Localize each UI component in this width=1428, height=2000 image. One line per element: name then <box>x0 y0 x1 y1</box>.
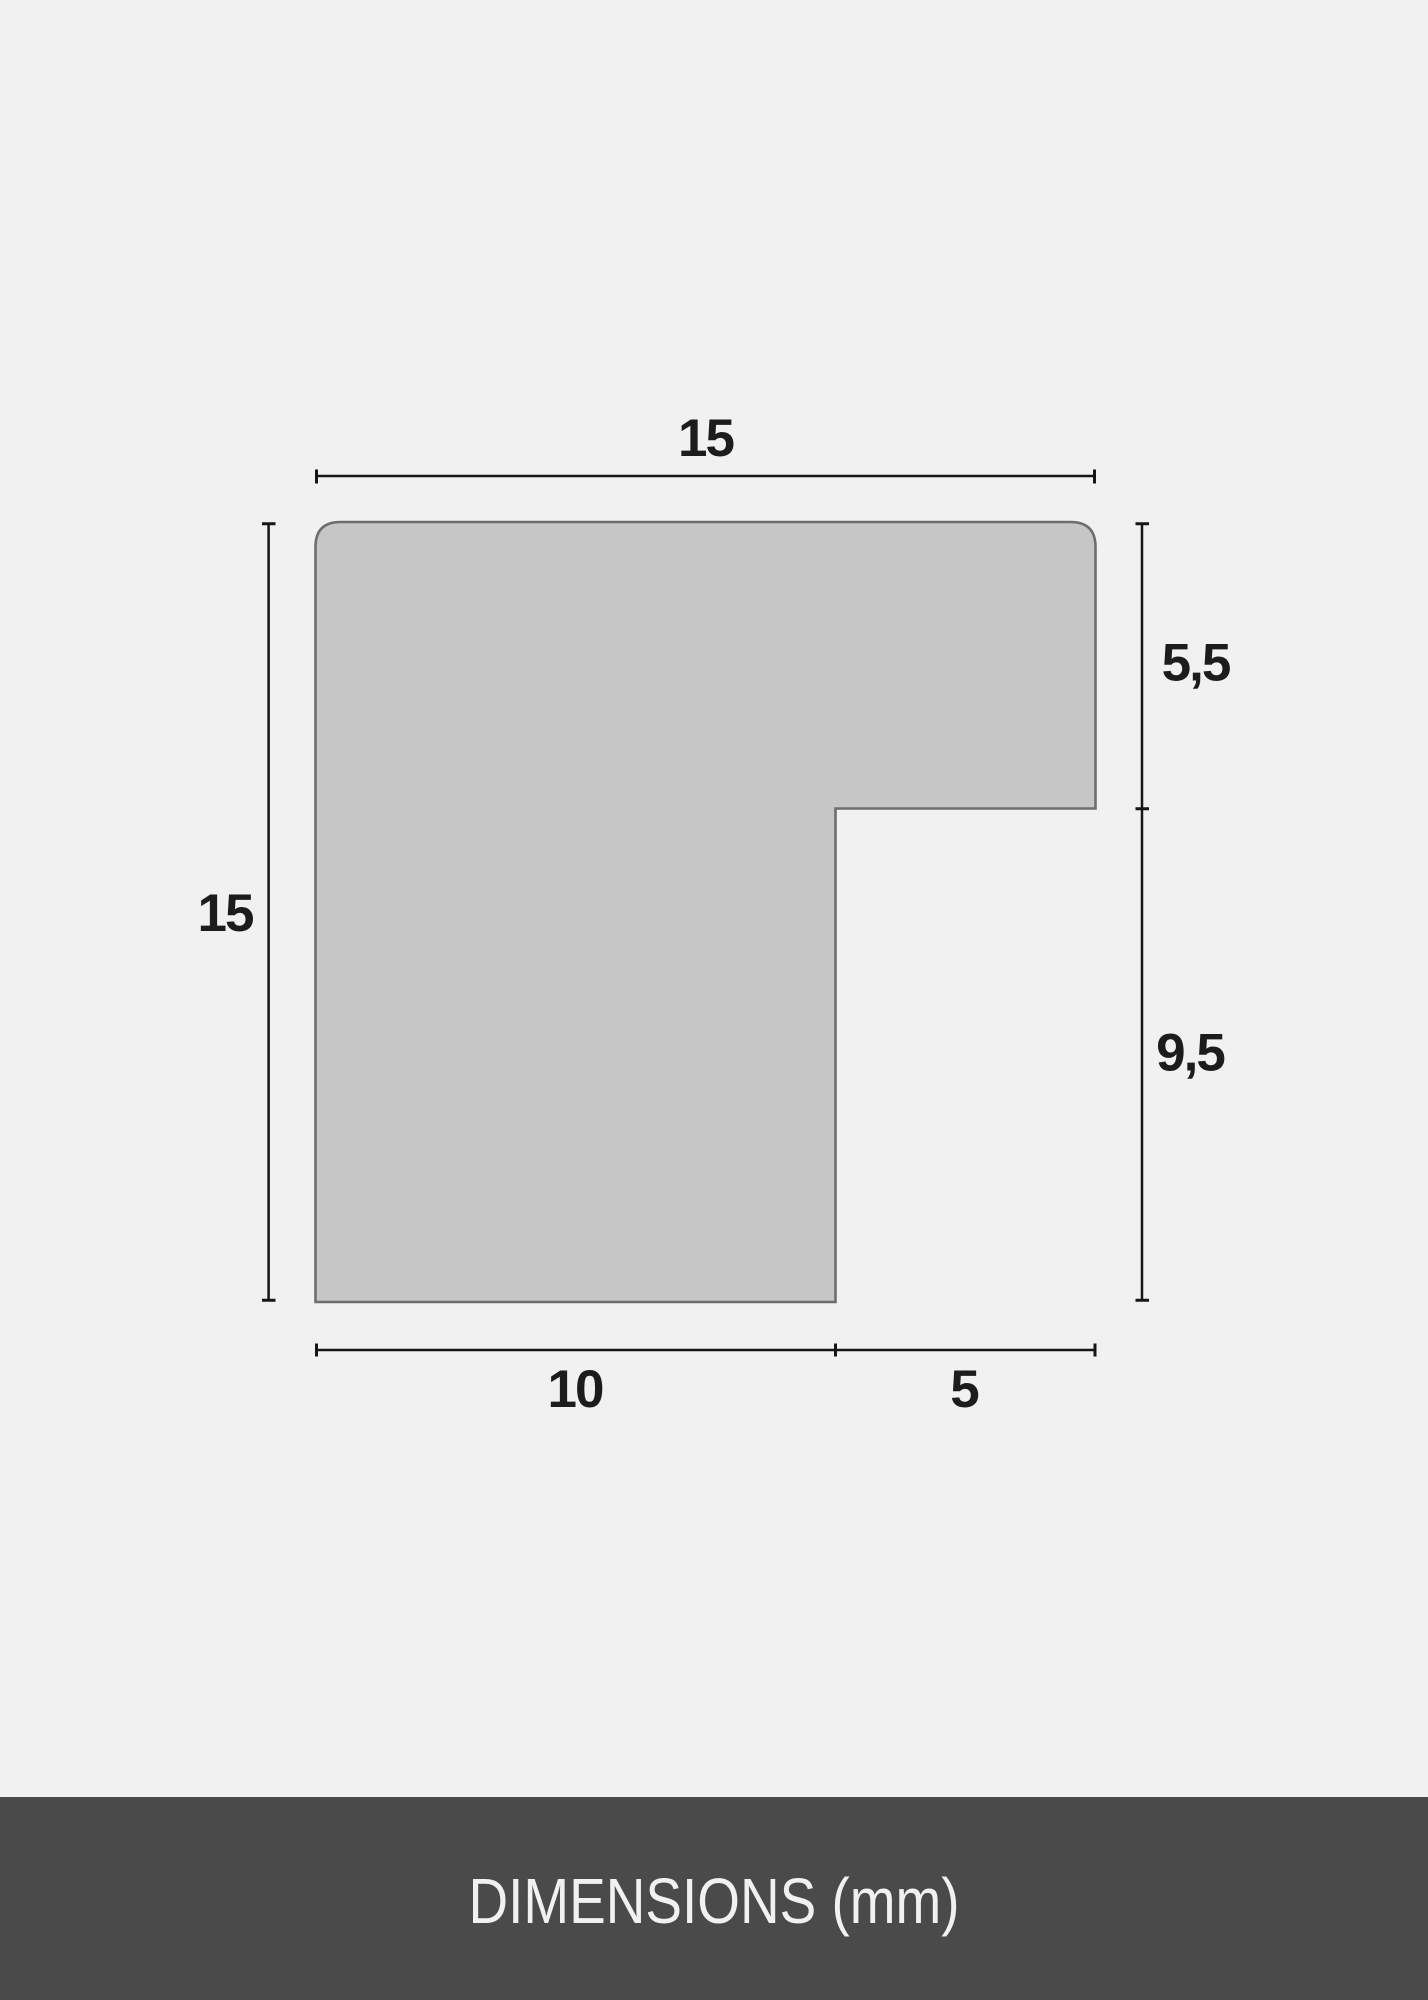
svg-text:5,5: 5,5 <box>1162 633 1230 692</box>
svg-text:9,5: 9,5 <box>1156 1024 1224 1083</box>
svg-text:5: 5 <box>950 1360 979 1419</box>
svg-text:10: 10 <box>548 1360 603 1419</box>
svg-text:15: 15 <box>198 884 253 943</box>
svg-text:15: 15 <box>678 409 733 468</box>
svg-text:DIMENSIONS (mm): DIMENSIONS (mm) <box>469 1865 960 1937</box>
